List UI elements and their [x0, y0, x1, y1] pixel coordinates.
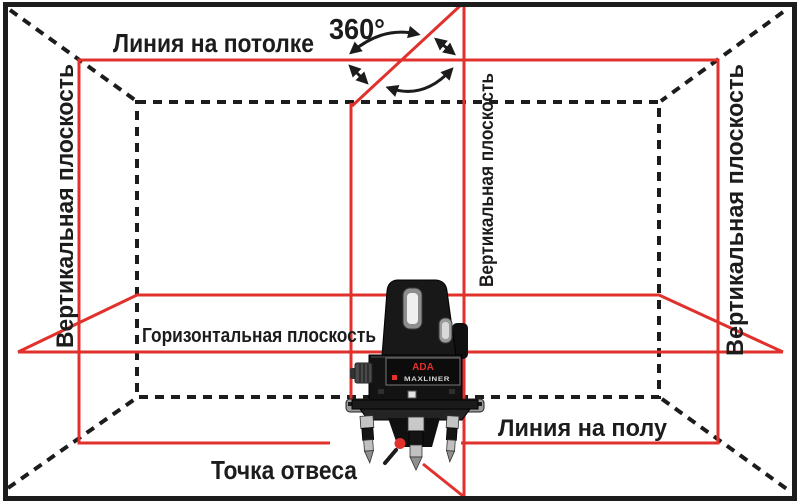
ceiling-line-label: Линия на потолке: [113, 28, 314, 58]
vertical-plane-label-right: Вертикальная плоскость: [722, 64, 749, 356]
plumb-pointer-tick: [385, 450, 396, 463]
floor-line-label: Линия на полу: [498, 415, 668, 442]
horizontal-plane-label: Горизонтальная плоскость: [142, 325, 376, 347]
device-brand-text: ADA: [412, 362, 434, 373]
tripod-leg-center: [408, 417, 424, 470]
rotation-arrow-lower-left-icon: [351, 67, 366, 82]
corner-edge-bottom-right: [662, 399, 791, 492]
base-plate: [352, 400, 478, 409]
laser-level-room-diagram: ADA MAXLINER: [0, 0, 800, 504]
laser-window-front-glass: [407, 293, 418, 324]
plumb-point-dot: [395, 438, 406, 449]
device-bolt-right: [449, 389, 455, 394]
tripod-leg-left: [360, 416, 376, 464]
device-bubble-vial: [408, 391, 416, 398]
rotation-arc-lower-icon: [389, 70, 451, 91]
vertical-plane-label-left: Вертикальная плоскость: [52, 64, 79, 348]
diagram-canvas: ADA MAXLINER: [0, 0, 800, 504]
device-model-text: MAXLINER: [404, 376, 450, 383]
vertical-plane-label-middle: Вертикальная плоскость: [477, 73, 498, 287]
rotated-plane-floor-diagonal: [423, 464, 463, 496]
rotation-angle-label: 360°: [329, 14, 385, 46]
device-bolt-left: [378, 389, 384, 394]
tripod-leg-right: [444, 416, 459, 463]
laser-window-side-glass: [442, 322, 449, 339]
plumb-point-label: Точка отвеса: [211, 455, 357, 485]
device-label-red-square: [392, 375, 397, 380]
rotation-arrow-upper-right-icon: [437, 40, 453, 53]
